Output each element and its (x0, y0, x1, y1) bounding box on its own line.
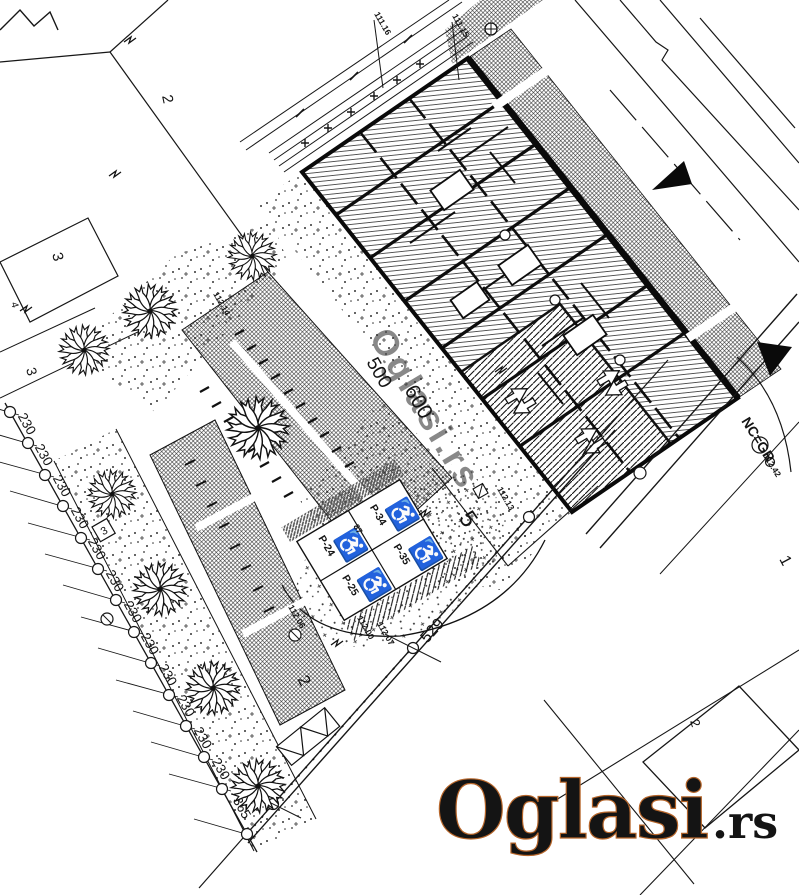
parcel-2-label: 2 (158, 93, 176, 105)
watermark-word: Oglasi (436, 763, 708, 857)
watermark-oglasi: Oglasi .rs (436, 763, 778, 857)
dim-230: 230 (15, 410, 39, 437)
parcel-1-label: 1 (775, 553, 794, 569)
parcel-3-label: 3 (48, 251, 67, 263)
parcel-2-label: 2 (687, 717, 704, 729)
road-nc-gr-label: NC=GR (738, 414, 778, 464)
site-plan-drawing: Oglasi.rs (0, 0, 799, 895)
parcel-4-label: 4 (8, 301, 20, 310)
watermark-tld: .rs (712, 795, 778, 849)
north-arrow-icon (652, 161, 692, 190)
parcel-3-label: 3 (23, 366, 41, 378)
site-plan-page: Oglasi.rs (0, 0, 799, 895)
